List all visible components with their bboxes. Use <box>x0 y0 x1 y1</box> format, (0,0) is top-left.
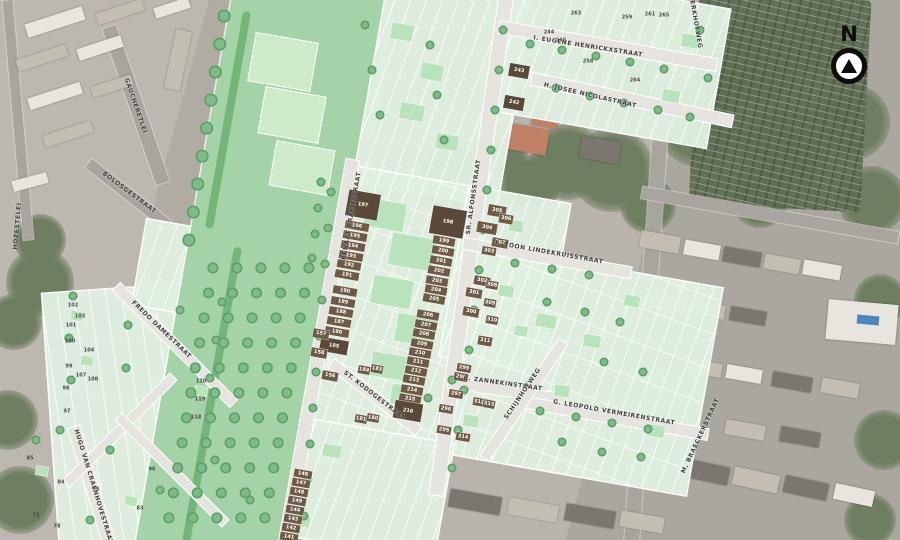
tree-icon <box>598 448 607 457</box>
tree-icon <box>433 91 442 100</box>
tree-icon <box>543 298 552 307</box>
building-roof <box>27 82 83 110</box>
lot-number: 104 <box>84 349 94 354</box>
tree-icon <box>487 146 496 155</box>
garden-plot <box>35 466 48 477</box>
lot-number: 99 <box>66 365 73 370</box>
building-roof <box>857 315 880 326</box>
tree-icon <box>122 364 131 373</box>
building-roof <box>763 253 801 274</box>
lot-number: 83 <box>137 507 144 512</box>
building-roof <box>729 306 767 326</box>
building-roof <box>820 377 860 398</box>
lot-number: 97 <box>64 410 71 415</box>
tree-icon <box>440 136 449 145</box>
garden-plot <box>498 284 515 297</box>
building-roof <box>683 239 721 260</box>
tree-icon <box>581 308 590 317</box>
tree-icon <box>686 113 695 122</box>
tree-icon <box>465 346 474 355</box>
masterplan-map: 1971961951941931921911901891881871861851… <box>0 0 900 540</box>
tree-icon <box>106 446 115 455</box>
building-roof <box>42 121 93 148</box>
tree-icon <box>558 46 567 55</box>
north-arrow: N <box>826 24 872 84</box>
building-roof <box>802 259 842 280</box>
foliage-patch <box>854 410 900 470</box>
park-tree-icon <box>182 234 195 247</box>
lot-number: 108 <box>88 378 98 383</box>
building-roof <box>783 475 830 501</box>
tree-icon <box>327 188 336 197</box>
tree-icon <box>69 292 78 301</box>
park-tree-icon <box>191 178 204 191</box>
tree-icon <box>572 413 581 422</box>
tree-icon <box>548 265 557 274</box>
garden-plot <box>554 384 571 397</box>
building-roof <box>95 0 144 25</box>
tree-icon <box>306 440 315 449</box>
tree-icon <box>660 65 669 74</box>
map-layers: 1971961951941931921911901891881871861851… <box>0 0 900 540</box>
tree-icon <box>211 456 220 465</box>
tree-icon <box>654 106 663 115</box>
tree-icon <box>318 296 327 305</box>
tree-icon <box>626 58 635 67</box>
tree-icon <box>156 486 165 495</box>
tree-icon <box>475 266 484 275</box>
tree-icon <box>424 394 433 403</box>
tree-icon <box>616 318 625 327</box>
building-roof <box>153 0 191 19</box>
tree-icon <box>32 436 41 445</box>
compass-needle-icon <box>841 59 857 73</box>
building-roof <box>164 29 192 91</box>
park-tree-icon <box>218 10 231 23</box>
tree-icon <box>491 106 500 115</box>
tree-icon <box>324 224 333 233</box>
tree-icon <box>67 376 76 385</box>
building-roof <box>771 371 813 393</box>
building-roof <box>507 497 559 522</box>
building-roof <box>725 364 763 384</box>
tree-icon <box>511 259 520 268</box>
lot-number: 84 <box>58 481 65 486</box>
lot-number: 120 <box>196 380 206 385</box>
tree-icon <box>495 66 504 75</box>
tree-icon <box>308 254 317 263</box>
tree-icon <box>56 426 65 435</box>
lot-number: 102 <box>68 304 78 309</box>
tree-icon <box>206 374 215 383</box>
building-roof <box>722 246 762 267</box>
tree-icon <box>426 41 435 50</box>
tree-icon <box>309 404 318 413</box>
north-label: N <box>826 24 872 45</box>
lot-number: 263 <box>571 12 581 17</box>
park-tree-icon <box>196 150 209 163</box>
tree-icon <box>704 74 713 83</box>
lot-number: 264 <box>630 79 640 84</box>
tree-icon <box>639 368 648 377</box>
tree-icon <box>218 298 227 307</box>
lot-number: 96 <box>149 468 156 473</box>
compass-ring <box>831 48 867 84</box>
tree-icon <box>314 204 323 213</box>
garden-plot <box>514 325 529 337</box>
tree-icon <box>558 438 567 447</box>
tree-icon <box>376 111 385 120</box>
tree-icon <box>536 407 545 416</box>
building-roof <box>24 6 85 38</box>
tree-icon <box>312 368 321 377</box>
building-roof <box>15 44 68 71</box>
lot-number: 101 <box>66 324 76 329</box>
lot-number: 259 <box>622 16 632 21</box>
lot-number: 100 <box>65 340 75 345</box>
tree-icon <box>321 260 330 269</box>
park-tree-icon <box>213 38 226 51</box>
tree-icon <box>608 419 617 428</box>
lot-number: 85 <box>27 457 34 462</box>
park-tree-icon <box>200 122 213 135</box>
tree-icon <box>317 178 326 187</box>
street-label: BOLOSGESTRAAT <box>101 171 157 215</box>
tree-icon <box>637 453 646 462</box>
tree-icon <box>86 516 95 525</box>
lot-number: 107 <box>76 374 86 379</box>
building-roof <box>833 483 875 507</box>
tree-icon <box>600 358 609 367</box>
tree-icon <box>176 306 185 315</box>
building-roof <box>779 426 821 448</box>
garden-plot <box>80 356 93 367</box>
lot-number: 119 <box>195 398 205 403</box>
park-tree-icon <box>187 206 200 219</box>
lot-number: 118 <box>191 416 201 421</box>
garden-plot <box>463 414 480 427</box>
building-roof <box>564 503 616 528</box>
tree-icon <box>311 230 320 239</box>
tree-icon <box>361 21 370 30</box>
lot-number: 98 <box>63 387 70 392</box>
lot-number: 78 <box>54 525 61 530</box>
building-roof <box>448 489 502 516</box>
tree-icon <box>499 26 508 35</box>
tree-icon <box>448 464 457 473</box>
lot-number: 73 <box>33 514 40 519</box>
garden-plot <box>624 294 641 307</box>
lot-number: 103 <box>75 315 85 320</box>
lot-number: 258 <box>583 60 593 65</box>
lot-number: 261 <box>645 13 655 18</box>
tree-icon <box>368 66 377 75</box>
building-roof <box>724 419 766 441</box>
lot-number: 244 <box>544 31 554 36</box>
tree-icon <box>483 186 492 195</box>
park-tree-icon <box>209 66 222 79</box>
building-parcel: 198 <box>429 205 467 238</box>
lot-number: 265 <box>659 14 669 19</box>
tree-icon <box>644 425 653 434</box>
tree-icon <box>124 321 133 330</box>
tree-icon <box>585 271 594 280</box>
park-tree-icon <box>204 94 217 107</box>
building-roof <box>732 466 781 493</box>
